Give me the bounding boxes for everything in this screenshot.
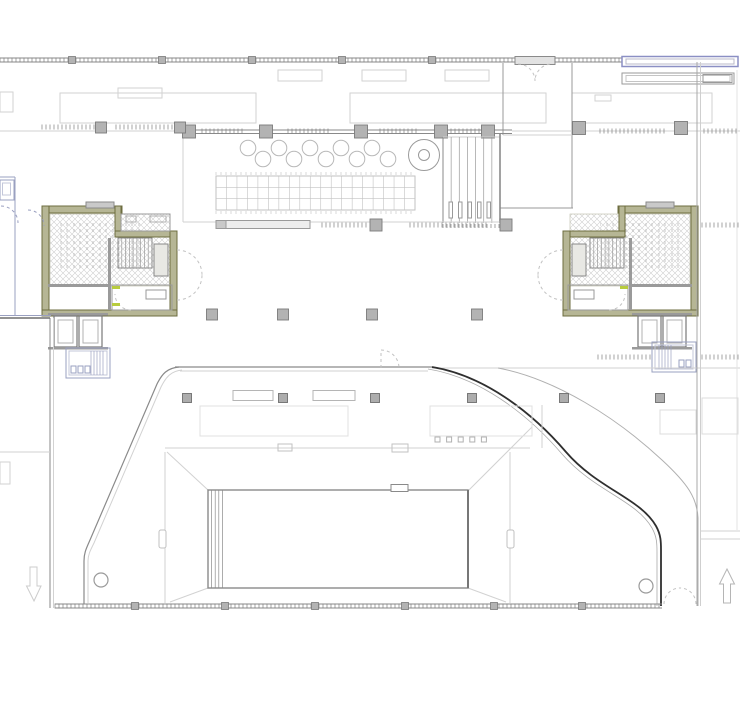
lower-hall-column	[183, 394, 192, 403]
margin-west-fixture	[0, 462, 10, 484]
plaza-column	[278, 309, 289, 320]
upper-room-east	[572, 93, 712, 123]
lower-hall-chamfer-se	[468, 588, 506, 602]
top-curtain-wall-west-post	[429, 57, 436, 64]
core-west-partition	[108, 238, 111, 310]
handrail-post	[487, 202, 491, 218]
column	[370, 219, 382, 231]
core-west-double-door	[177, 250, 202, 275]
core-west-vestibule	[86, 202, 114, 208]
entrance-door-swing	[518, 64, 552, 81]
core-east-counter	[572, 244, 586, 276]
core-west-room-door	[115, 294, 131, 310]
upper-room-mid	[350, 93, 546, 123]
stage-pit-notch	[391, 485, 408, 492]
skylight-3	[445, 70, 489, 81]
elevator-shaft	[79, 316, 102, 347]
floor-socket	[470, 437, 475, 442]
column	[573, 122, 586, 135]
long-table	[216, 176, 415, 210]
column-base	[94, 573, 108, 587]
canopy-lower-inner	[626, 76, 730, 82]
lime-accent	[112, 303, 120, 306]
lower-hall-column	[468, 394, 477, 403]
lower-hall-column	[560, 394, 569, 403]
handrail-post	[468, 202, 472, 218]
core-east-ceiling-grid	[600, 222, 682, 270]
core-east-vestibule	[646, 202, 674, 208]
elevator-wall	[48, 313, 108, 316]
lower-hall-column	[371, 394, 380, 403]
core-west-ceiling-grid	[58, 222, 140, 270]
up-arrow	[720, 569, 735, 603]
floor-socket	[481, 437, 486, 442]
core-west-room	[112, 285, 172, 310]
door-swing-top	[381, 350, 399, 368]
core-west-wall	[115, 231, 177, 237]
bottom-curtain-wall-post	[132, 603, 139, 610]
entrance-vestibule	[515, 57, 555, 65]
column	[175, 122, 186, 133]
canopy-blue-inner	[626, 59, 734, 64]
round-table	[318, 151, 334, 167]
core-east-partition	[629, 238, 632, 310]
ext-stair-east-steps	[679, 360, 684, 367]
column-base	[639, 579, 653, 593]
ext-stair-west-steps	[85, 366, 90, 373]
stage-pit	[208, 490, 468, 588]
round-table	[380, 151, 396, 167]
wall-handle	[159, 530, 166, 548]
bottom-curtain-wall-post	[222, 603, 229, 610]
canopy-blue	[622, 57, 738, 67]
column	[675, 122, 688, 135]
ramp-curve-black	[432, 367, 661, 606]
column	[482, 125, 495, 138]
ext-stair-west-inner	[69, 351, 107, 375]
planter	[216, 221, 310, 229]
margin-east-room-2	[660, 410, 696, 434]
core-west-counter	[154, 244, 168, 276]
large-round-table-center	[419, 150, 430, 161]
wall-handle	[507, 530, 514, 548]
down-arrow	[27, 567, 42, 601]
lower-hall-bench	[313, 391, 355, 401]
round-table	[349, 151, 365, 167]
core-east-partition	[630, 284, 692, 287]
margin-west-room-inner	[3, 183, 11, 195]
top-curtain-wall-west-post	[159, 57, 166, 64]
handrail-post	[459, 202, 463, 218]
core-east-double-door	[538, 275, 563, 300]
lower-hall-chamfer-ne	[468, 427, 532, 491]
fixture-small	[595, 95, 611, 101]
round-table	[333, 140, 349, 156]
ramp-curve-outer	[498, 368, 698, 606]
margin-west-room-top	[0, 92, 13, 112]
exit-door-swing	[664, 588, 680, 604]
skylight-2	[362, 70, 406, 81]
plaza-column	[367, 309, 378, 320]
column	[355, 125, 368, 138]
skylight-1	[278, 70, 322, 81]
top-curtain-wall-west-post	[69, 57, 76, 64]
bottom-curtain-wall-post	[491, 603, 498, 610]
core-west-partition	[48, 284, 110, 287]
core-east-wall	[563, 231, 625, 237]
top-curtain-wall-west-post	[249, 57, 256, 64]
ramp-curve-inner	[428, 369, 657, 606]
column	[435, 125, 448, 138]
bottom-curtain-wall-post	[402, 603, 409, 610]
core-east-double-door	[538, 250, 563, 275]
round-table	[302, 140, 318, 156]
round-table	[364, 140, 380, 156]
plaza-column	[472, 309, 483, 320]
top-curtain-wall-west-post	[339, 57, 346, 64]
elevator-shaft	[54, 316, 77, 347]
bottom-curtain-wall-post	[312, 603, 319, 610]
core-west-wall	[170, 231, 177, 316]
lime-accent	[620, 286, 628, 289]
exit-door-swing	[680, 588, 696, 604]
plan-layers	[0, 57, 740, 610]
floor-plan-drawing	[0, 0, 740, 707]
core-west-double-door	[177, 275, 202, 300]
column	[96, 122, 107, 133]
ext-stair-west-steps	[78, 366, 83, 373]
core-west-wall	[42, 206, 49, 316]
lower-hall-chamfer-sw	[170, 588, 208, 602]
ext-stair-west-steps	[71, 366, 76, 373]
planter-cap	[216, 221, 226, 229]
core-west-desk	[146, 290, 166, 299]
core-east-desk	[574, 290, 594, 299]
column	[260, 125, 273, 138]
plaza-column	[207, 309, 218, 320]
floor-socket	[458, 437, 463, 442]
round-table	[271, 140, 287, 156]
lower-hall-chamfer-nw	[167, 452, 208, 490]
core-east-room-door	[609, 294, 625, 310]
handrail-post	[478, 202, 482, 218]
margin-east-room	[702, 398, 738, 434]
lower-hall-partition-w	[200, 406, 348, 436]
round-table	[255, 151, 271, 167]
round-table	[240, 140, 256, 156]
floor-plan-page	[0, 0, 740, 707]
ext-stair-east-steps	[686, 360, 691, 367]
lower-hall-column	[656, 394, 665, 403]
lime-accent	[112, 286, 120, 289]
lower-hall-bench	[233, 391, 273, 401]
bottom-curtain-wall-post	[579, 603, 586, 610]
core-east-wall	[563, 231, 570, 316]
lower-hall-column	[279, 394, 288, 403]
floor-socket	[447, 437, 452, 442]
column	[500, 219, 512, 231]
large-round-table	[409, 140, 440, 171]
chamfer-west-inner	[88, 370, 182, 603]
core-east-room	[568, 285, 628, 310]
handrail-post	[449, 202, 453, 218]
round-table	[286, 151, 302, 167]
floor-socket	[435, 437, 440, 442]
elevator-wall	[632, 313, 692, 316]
